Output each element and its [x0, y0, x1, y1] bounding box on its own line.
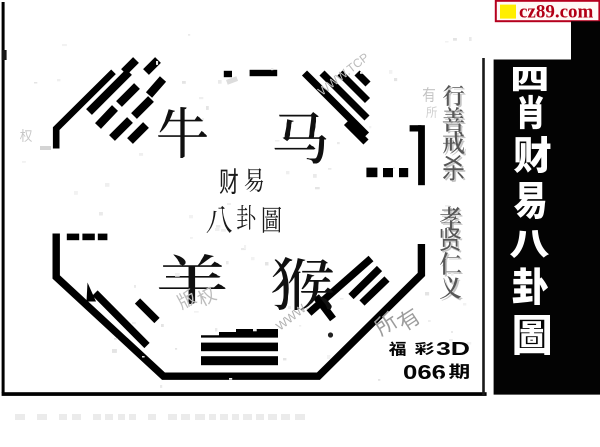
svg-text:cz89.com: cz89.com: [519, 2, 594, 23]
svg-text:066: 066: [403, 361, 446, 384]
svg-text:3D: 3D: [436, 338, 470, 359]
